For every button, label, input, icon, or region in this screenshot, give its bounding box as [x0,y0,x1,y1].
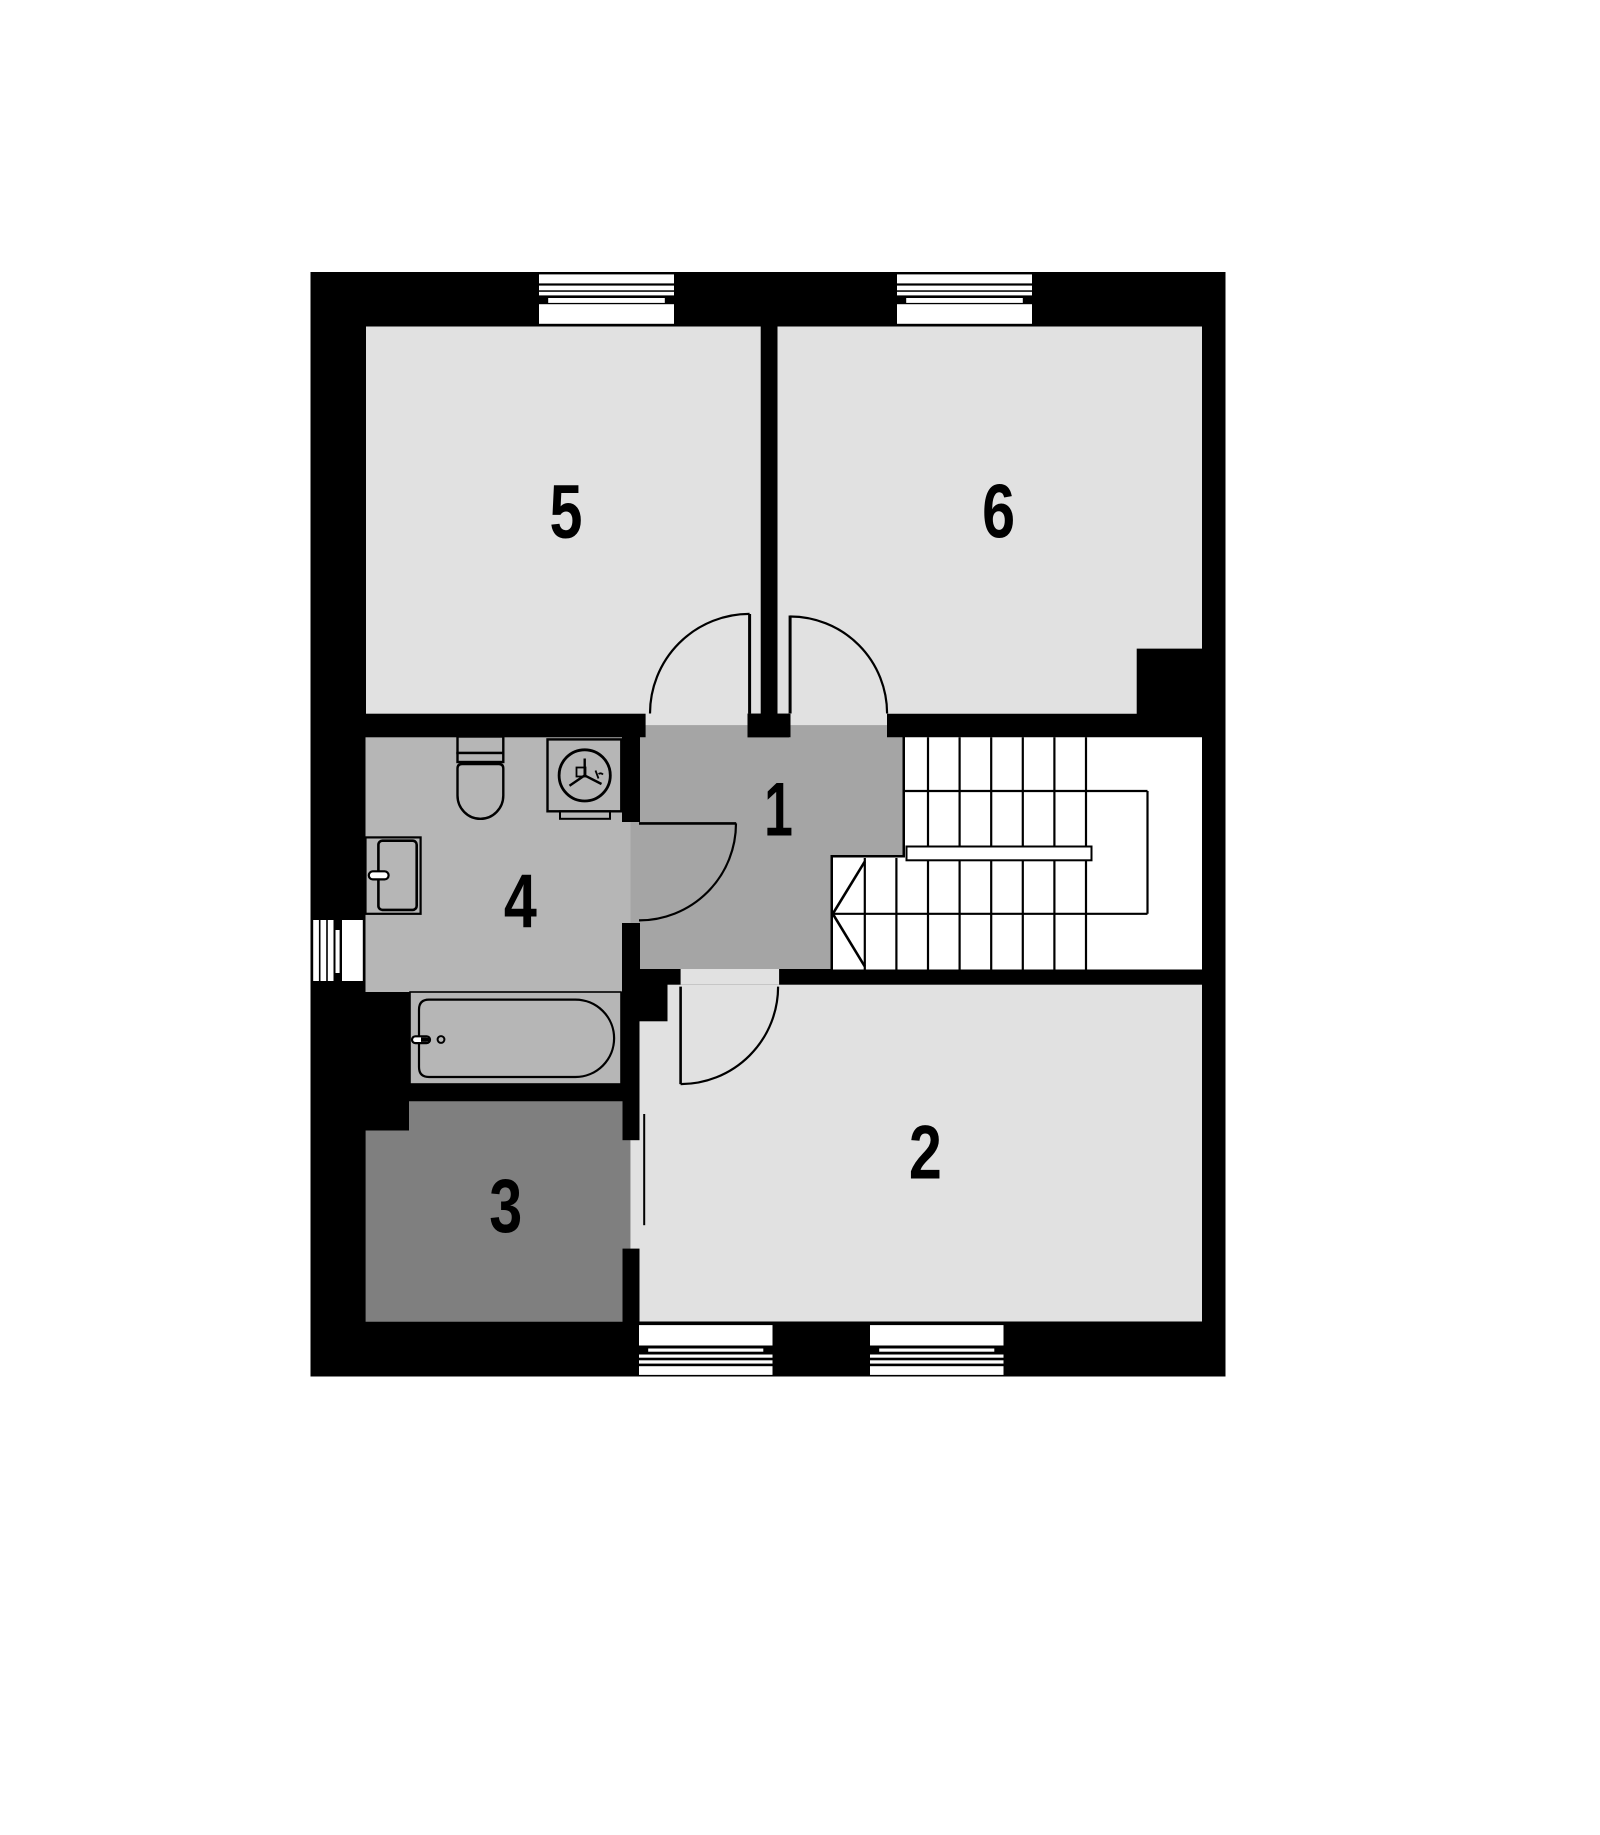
svg-text:1: 1 [764,767,793,852]
svg-text:4: 4 [504,859,537,944]
svg-text:6: 6 [982,469,1015,554]
svg-text:3: 3 [489,1164,522,1249]
svg-text:2: 2 [909,1110,942,1195]
svg-text:5: 5 [550,470,583,555]
